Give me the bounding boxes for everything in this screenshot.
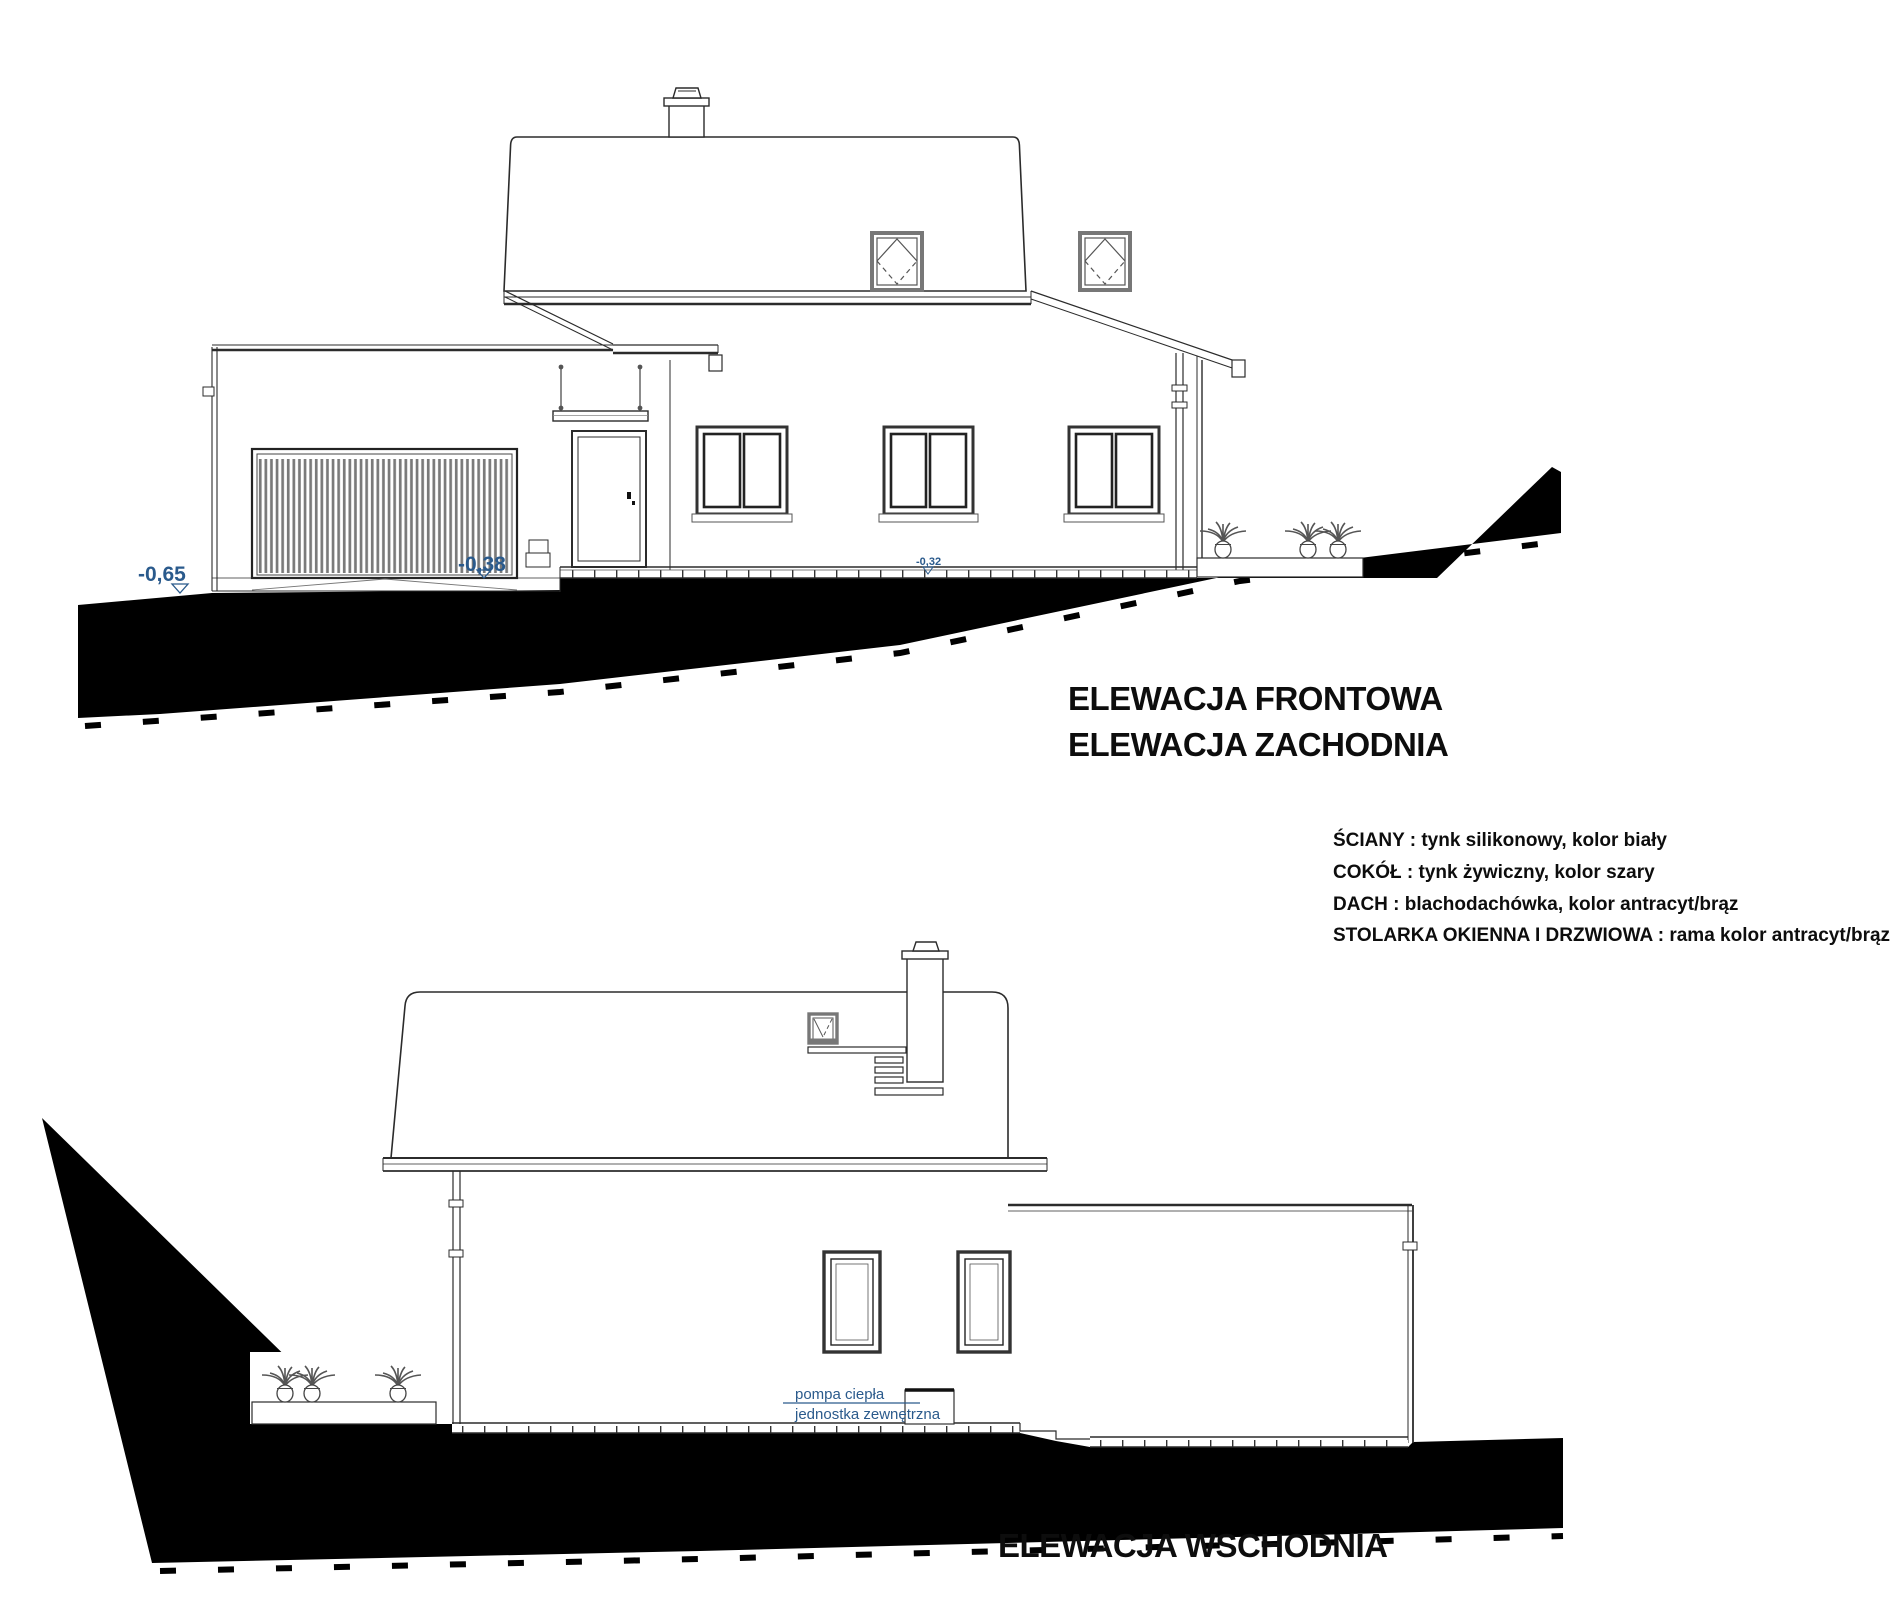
front-elevation-title-line1: ELEWACJA FRONTOWA <box>1068 680 1443 717</box>
east-elevation-drawing <box>42 942 1563 1571</box>
window <box>879 427 978 522</box>
heat-pump-label-line2: jednostka zewnętrzna <box>794 1406 941 1423</box>
door-canopy <box>553 365 648 421</box>
front-windows <box>692 427 1164 522</box>
skylight-left <box>872 233 922 290</box>
window <box>692 427 792 522</box>
east-windows <box>824 1252 1010 1352</box>
entry-steps <box>526 540 550 567</box>
legend-roof: DACH : blachodachówka, kolor antracyt/br… <box>1333 894 1738 915</box>
east-chimney <box>902 942 948 1082</box>
front-elevation-title-line2: ELEWACJA ZACHODNIA <box>1068 726 1448 763</box>
level-garage-apron: -0,38 <box>458 553 506 576</box>
architectural-sheet: -0,65 -0,38 -0,32 pompa ciepła jednostka… <box>0 0 1896 1622</box>
door-handle <box>627 492 631 499</box>
level-driveway: -0,65 <box>138 563 186 586</box>
east-elevation-title: ELEWACJA WSCHODNIA <box>998 1527 1387 1564</box>
materials-legend: ŚCIANY : tynk silikonowy, kolor biały CO… <box>1333 829 1890 946</box>
front-chimney <box>664 88 709 137</box>
driveway-apron <box>212 578 560 591</box>
east-garage-wing <box>1008 1205 1417 1443</box>
east-eaves <box>383 1158 1047 1171</box>
legend-walls: ŚCIANY : tynk silikonowy, kolor biały <box>1333 829 1667 851</box>
downspout <box>1172 353 1187 577</box>
east-wall-downspout <box>449 1171 463 1424</box>
titles: ELEWACJA FRONTOWA ELEWACJA ZACHODNIA ELE… <box>998 680 1448 1564</box>
window <box>824 1252 880 1352</box>
window <box>958 1252 1010 1352</box>
front-gutter-eaves <box>504 291 1245 377</box>
entry-door <box>572 431 646 567</box>
roof-access-window <box>809 1014 837 1043</box>
skylight-right <box>1080 233 1130 290</box>
east-terrain <box>42 1118 1563 1563</box>
front-elevation-drawing <box>78 88 1561 726</box>
heat-pump-label-line1: pompa ciepła <box>795 1386 885 1403</box>
main-roof-face <box>504 137 1026 291</box>
front-planter <box>1197 522 1363 577</box>
window <box>1064 427 1164 522</box>
legend-plinth: COKÓŁ : tynk żywiczny, kolor szary <box>1333 861 1655 883</box>
level-house-perimeter: -0,32 <box>916 556 941 568</box>
elevations-drawing: -0,65 -0,38 -0,32 pompa ciepła jednostka… <box>0 0 1896 1622</box>
legend-windows-doors: STOLARKA OKIENNA I DRZWIOWA : rama kolor… <box>1333 925 1890 946</box>
